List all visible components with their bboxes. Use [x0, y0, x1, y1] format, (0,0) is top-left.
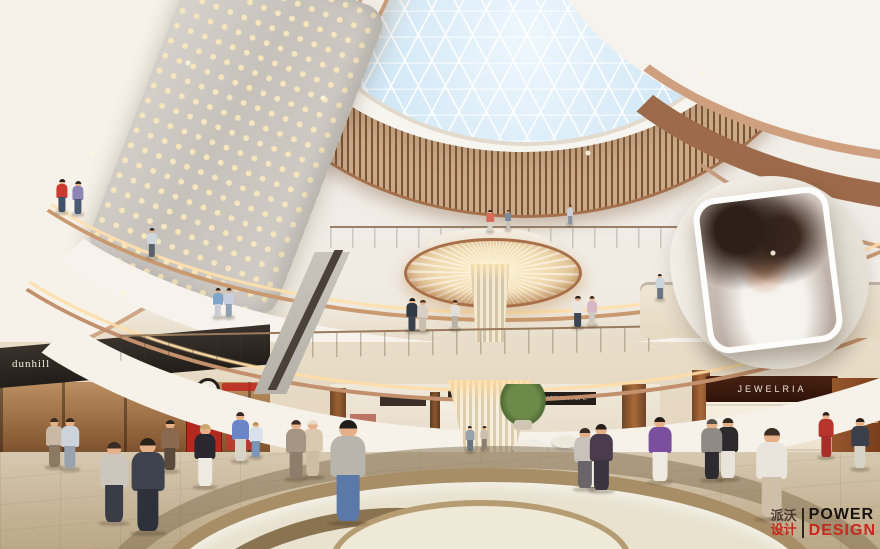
watermark-en-line1: POWER: [809, 507, 876, 523]
dunhill-sign: dunhill: [12, 358, 50, 370]
tree-planter: [514, 420, 532, 430]
bench-pod-2: [552, 436, 578, 448]
watermark-cn-line2: 设计: [771, 523, 797, 537]
billboard-fashion-ad: [698, 191, 839, 349]
watermark-en-line2: DESIGN: [809, 523, 876, 539]
power-design-watermark: 派沃 设计 POWER DESIGN: [771, 507, 876, 539]
watermark-chinese: 派沃 设计: [771, 509, 797, 536]
curved-led-billboard: [691, 184, 845, 355]
watermark-divider: [802, 508, 804, 538]
watermark-english: POWER DESIGN: [809, 507, 876, 539]
watermark-cn-line1: 派沃: [771, 509, 797, 523]
mall-atrium-rendering: dunhill T PATRIZIA PEPE JEWELRIA JEWELRI…: [0, 0, 880, 549]
